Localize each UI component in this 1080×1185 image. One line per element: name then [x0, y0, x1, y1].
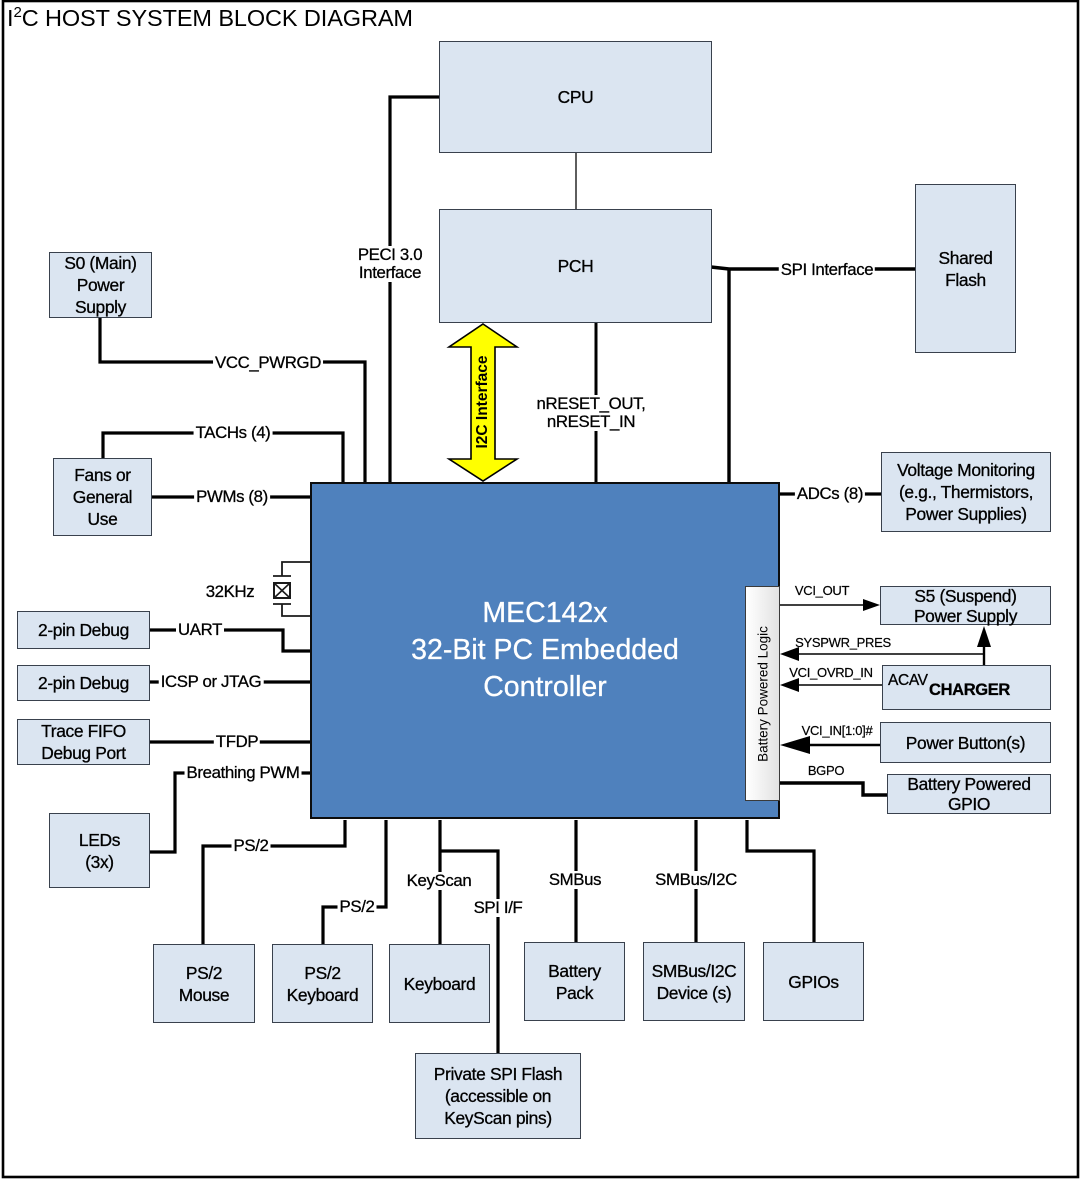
svg-text:I2C Interface: I2C Interface — [474, 355, 491, 448]
